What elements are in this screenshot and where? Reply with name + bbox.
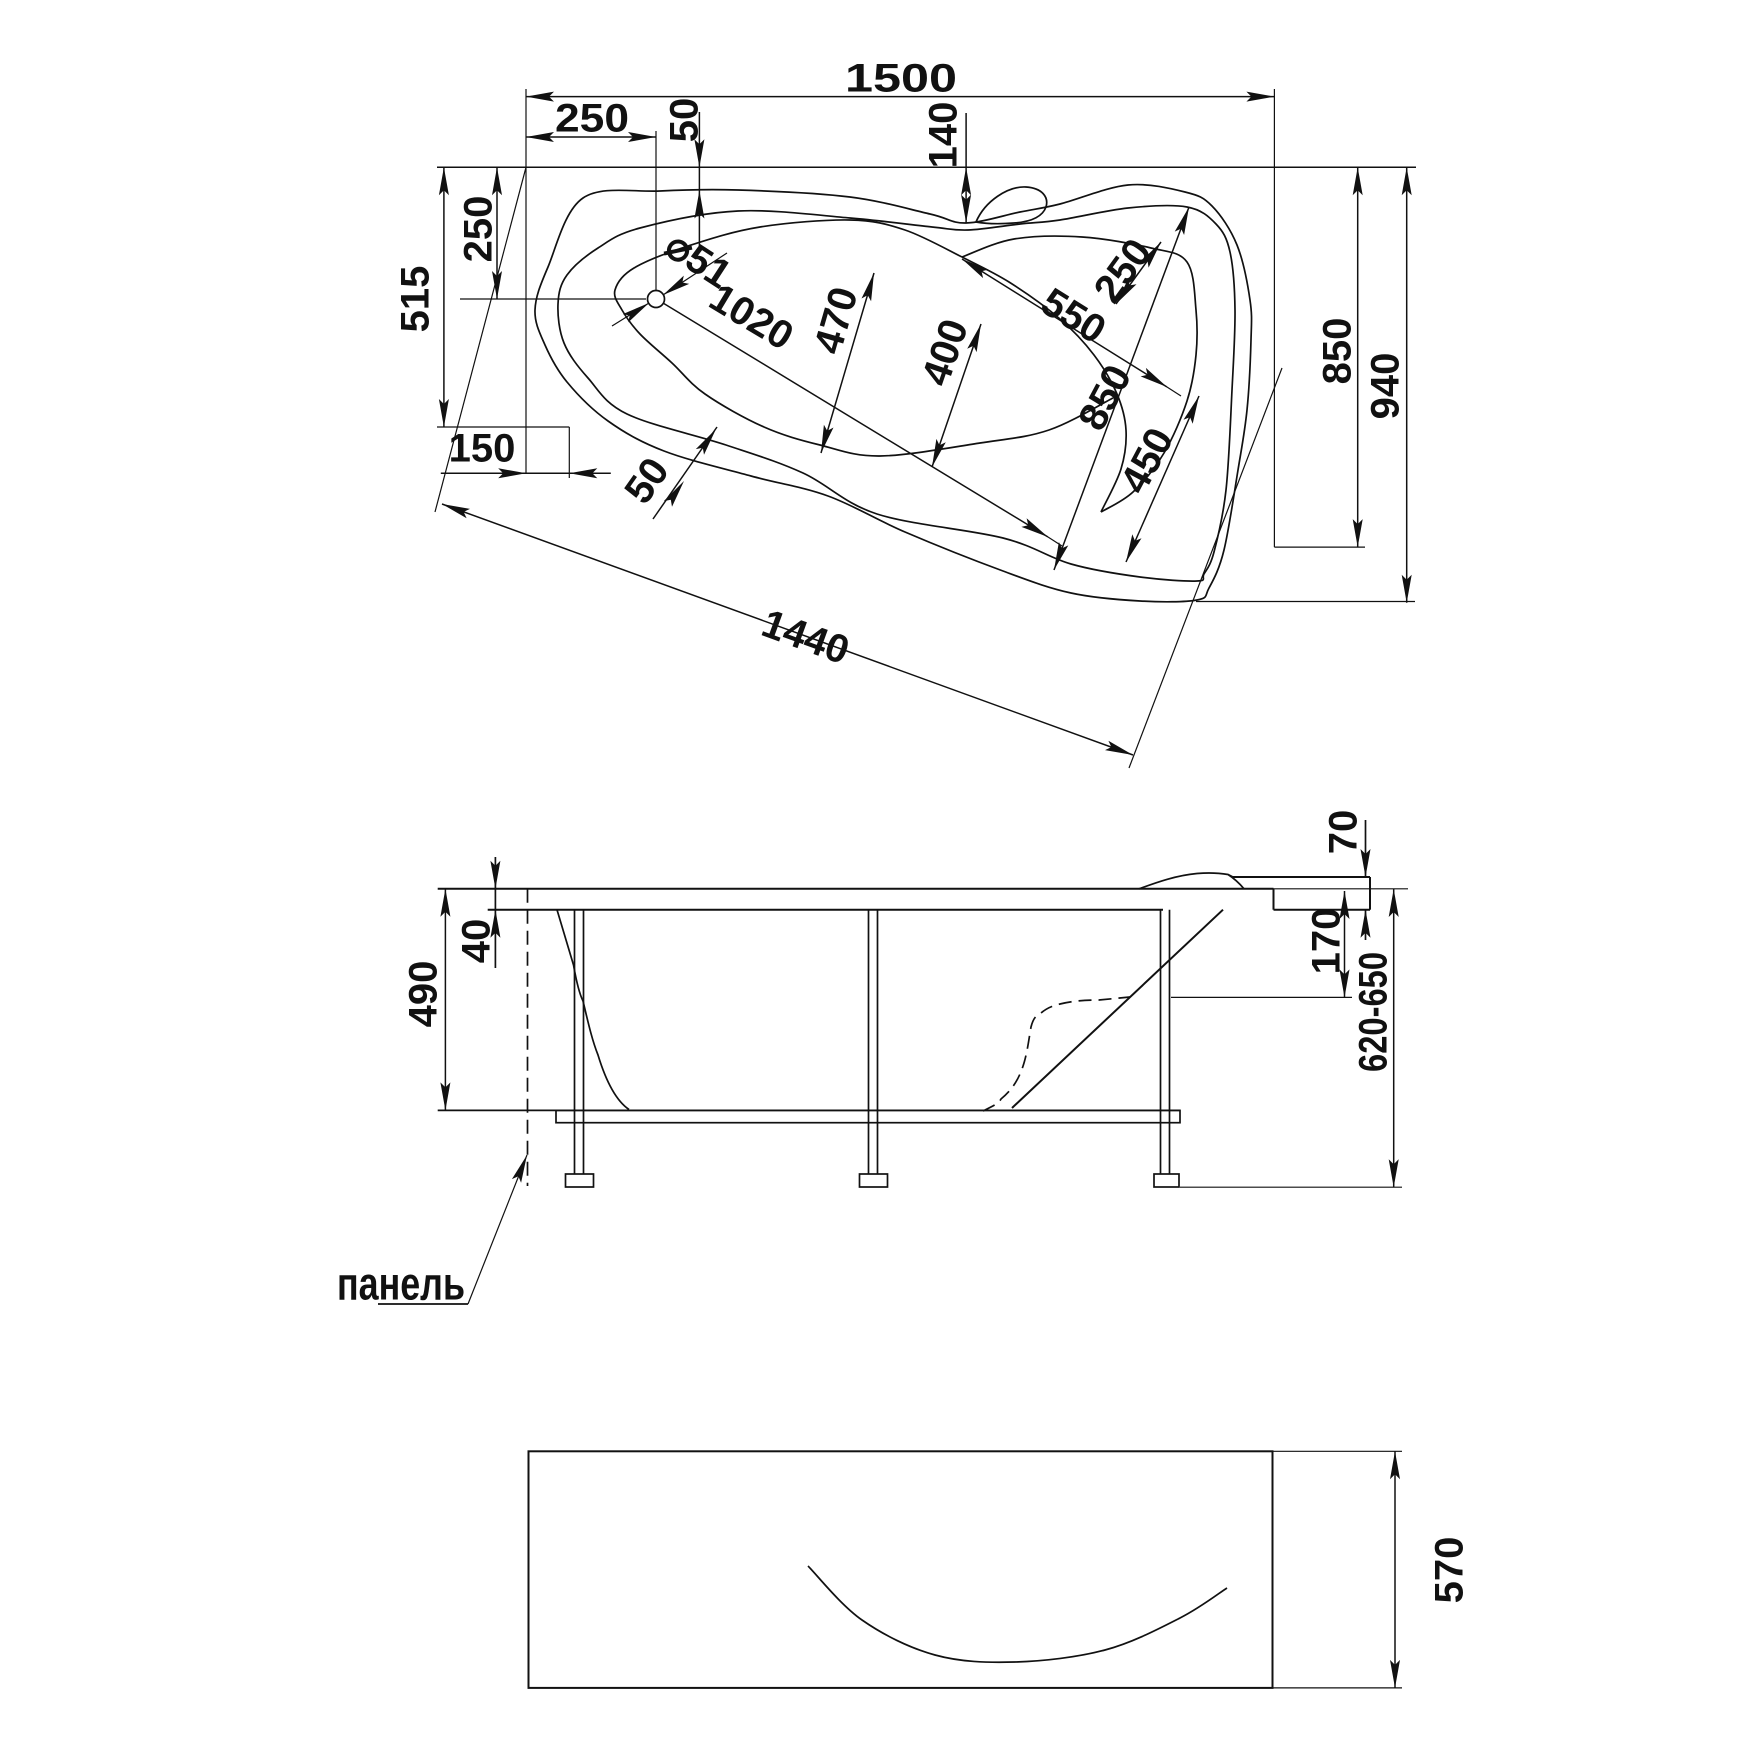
svg-text:570: 570 <box>1427 1537 1471 1604</box>
svg-text:620-650: 620-650 <box>1351 952 1395 1072</box>
svg-text:40: 40 <box>454 919 498 964</box>
svg-text:170: 170 <box>1304 908 1348 975</box>
svg-text:панель: панель <box>337 1258 465 1310</box>
svg-text:50: 50 <box>662 98 706 143</box>
svg-text:140: 140 <box>921 102 965 169</box>
svg-text:850: 850 <box>1315 318 1359 385</box>
svg-text:940: 940 <box>1363 353 1407 420</box>
svg-text:515: 515 <box>393 266 437 333</box>
svg-text:150: 150 <box>449 426 516 470</box>
svg-text:250: 250 <box>555 96 629 140</box>
svg-text:490: 490 <box>401 961 445 1028</box>
svg-text:70: 70 <box>1321 810 1365 855</box>
svg-text:250: 250 <box>456 196 500 263</box>
svg-text:1500: 1500 <box>845 56 957 100</box>
